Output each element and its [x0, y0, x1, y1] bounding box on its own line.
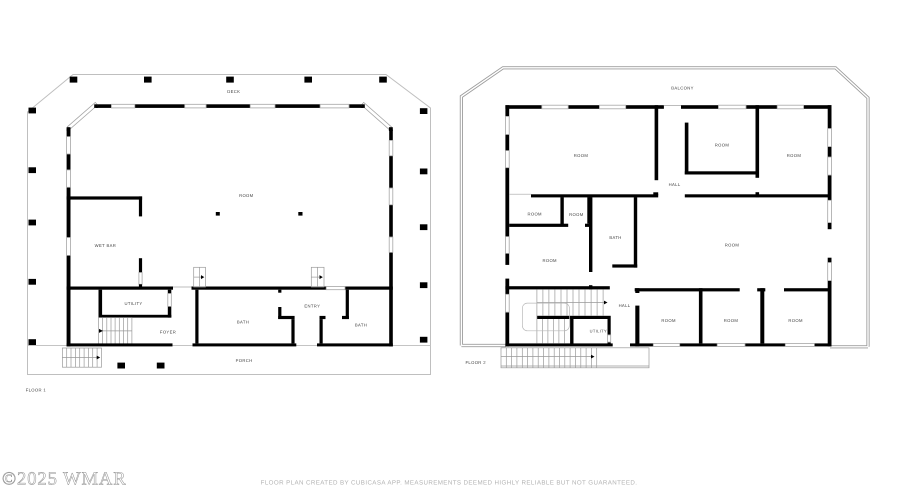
svg-text:BATH: BATH: [609, 235, 621, 240]
svg-text:ROOM: ROOM: [527, 212, 542, 217]
svg-text:FLOOR 1: FLOOR 1: [26, 387, 47, 392]
svg-text:HALL: HALL: [619, 303, 631, 308]
svg-text:ROOM: ROOM: [542, 258, 557, 263]
svg-text:ROOM: ROOM: [715, 143, 730, 148]
svg-text:PORCH: PORCH: [236, 358, 253, 363]
svg-text:©2025 WMAR: ©2025 WMAR: [2, 469, 127, 490]
svg-text:FOYER: FOYER: [160, 330, 176, 335]
svg-text:BATH: BATH: [355, 323, 367, 328]
svg-text:BATH: BATH: [237, 320, 249, 325]
svg-text:UTILITY: UTILITY: [124, 301, 142, 306]
svg-text:ROOM: ROOM: [661, 318, 676, 323]
svg-text:ROOM: ROOM: [788, 318, 803, 323]
svg-text:ROOM: ROOM: [569, 212, 584, 217]
svg-text:FLOOR 2: FLOOR 2: [466, 360, 487, 365]
svg-text:DECK: DECK: [227, 89, 240, 94]
svg-text:FLOOR PLAN CREATED BY CUBICASA: FLOOR PLAN CREATED BY CUBICASA APP. MEAS…: [261, 480, 638, 487]
svg-text:ROOM: ROOM: [725, 243, 740, 248]
svg-text:BALCONY: BALCONY: [671, 86, 693, 91]
svg-text:WET BAR: WET BAR: [95, 243, 116, 248]
svg-text:ROOM: ROOM: [724, 318, 739, 323]
svg-text:HALL: HALL: [669, 182, 681, 187]
svg-text:ROOM: ROOM: [787, 153, 802, 158]
svg-text:UTILITY: UTILITY: [590, 329, 607, 334]
svg-text:ROOM: ROOM: [239, 193, 254, 198]
svg-text:ROOM: ROOM: [574, 153, 589, 158]
svg-text:ENTRY: ENTRY: [304, 304, 320, 309]
